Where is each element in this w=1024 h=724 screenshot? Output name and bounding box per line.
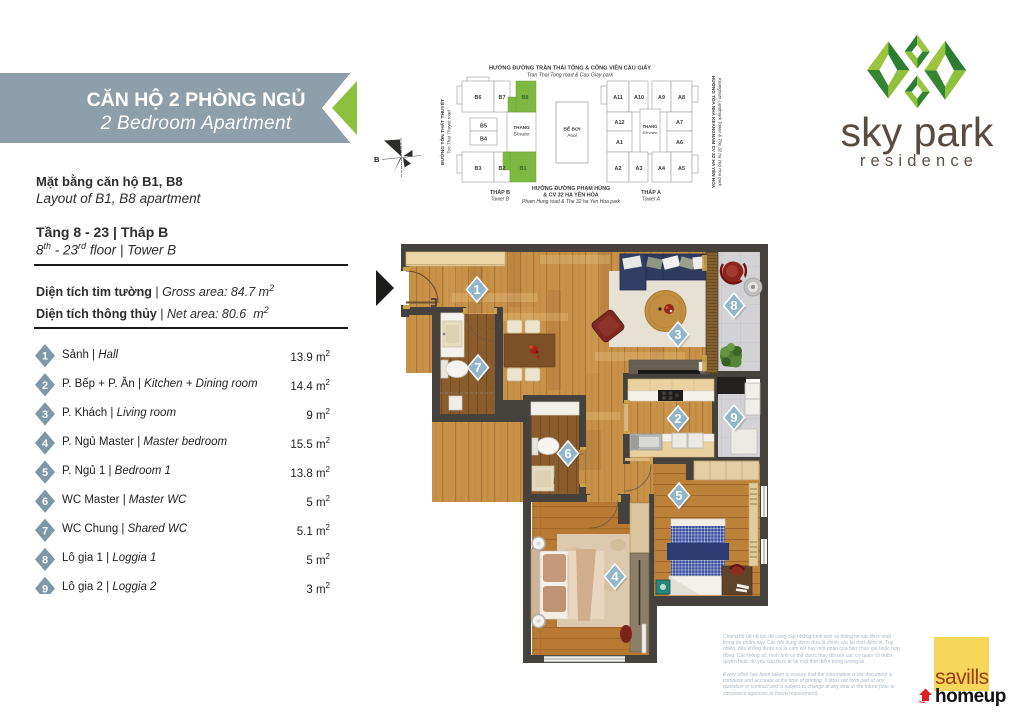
svg-text:A3: A3: [636, 166, 643, 172]
svg-text:Tran Thai Tong road & Cau Giay: Tran Thai Tong road & Cau Giay park: [527, 73, 613, 79]
svg-text:9: 9: [42, 584, 48, 595]
svg-text:1: 1: [473, 282, 480, 297]
svg-text:residence: residence: [860, 152, 978, 170]
svg-text:A7: A7: [676, 120, 683, 126]
svg-text:2: 2: [42, 380, 48, 392]
svg-text:Elevator: Elevator: [513, 132, 530, 137]
svg-text:A8: A8: [678, 95, 685, 101]
svg-text:A5: A5: [678, 166, 685, 172]
svg-text:Tower A: Tower A: [642, 197, 661, 203]
svg-text:sky park: sky park: [841, 109, 994, 155]
svg-text:HƯỚNG ĐƯỜNG TRẦN THÁI TÔNG & C: HƯỚNG ĐƯỜNG TRẦN THÁI TÔNG & CÔNG VIÊN C…: [489, 64, 651, 72]
svg-text:HƯỚNG TÒA NHÀ KEANGNAM CV 32 H: HƯỚNG TÒA NHÀ KEANGNAM CV 32 HA YÊN HÒA: [711, 76, 718, 189]
svg-text:& CV 32 HA YÊN HÒA: & CV 32 HA YÊN HÒA: [543, 191, 599, 199]
svg-text:B: B: [374, 155, 380, 164]
svg-text:ĐƯỜNG TÔN THẤT THUYẾT: ĐƯỜNG TÔN THẤT THUYẾT: [438, 99, 446, 165]
svg-text:A9: A9: [658, 95, 665, 101]
svg-text:6: 6: [564, 446, 571, 461]
svg-text:B6: B6: [475, 95, 482, 101]
svg-text:4: 4: [42, 438, 49, 450]
svg-text:A6: A6: [676, 140, 683, 146]
svg-text:THANG: THANG: [513, 125, 530, 130]
svg-text:1: 1: [42, 351, 48, 363]
svg-text:Keangnam Landmark Tower & The: Keangnam Landmark Tower & The 32 ha Yeo …: [718, 78, 723, 187]
svg-text:B1: B1: [520, 166, 527, 172]
svg-text:B5: B5: [480, 124, 487, 130]
svg-text:6: 6: [42, 496, 48, 508]
svg-text:Tower B: Tower B: [491, 197, 510, 203]
svg-text:B2: B2: [499, 166, 506, 172]
svg-text:9: 9: [730, 410, 737, 425]
svg-text:3: 3: [42, 409, 48, 421]
svg-text:5: 5: [42, 467, 48, 479]
svg-text:A12: A12: [615, 120, 625, 126]
svg-text:4: 4: [611, 569, 619, 584]
svg-text:Pool: Pool: [567, 133, 577, 138]
svg-text:Pham Hung road & The 32 ha Yen: Pham Hung road & The 32 ha Yen Hoa park: [522, 199, 621, 205]
svg-text:B8: B8: [522, 95, 529, 101]
svg-text:A2: A2: [615, 166, 622, 172]
svg-text:8: 8: [42, 554, 48, 566]
svg-text:THÁP A: THÁP A: [641, 189, 661, 196]
svg-text:Ton That Thuyet road: Ton That Thuyet road: [447, 110, 452, 154]
svg-text:7: 7: [42, 525, 48, 537]
svg-text:A1: A1: [616, 140, 623, 146]
svg-text:7: 7: [474, 360, 481, 375]
svg-text:B3: B3: [475, 166, 482, 172]
svg-text:A10: A10: [634, 95, 644, 101]
svg-text:2: 2: [674, 411, 681, 426]
svg-text:A11: A11: [613, 95, 623, 101]
svg-text:THÁP B: THÁP B: [490, 189, 510, 196]
svg-text:A4: A4: [658, 166, 665, 172]
svg-text:Elevator: Elevator: [643, 130, 658, 135]
svg-text:THANG: THANG: [643, 124, 658, 129]
svg-text:3: 3: [674, 327, 681, 342]
svg-text:B4: B4: [480, 137, 487, 143]
svg-text:8: 8: [730, 298, 737, 313]
svg-text:BỂ BƠI: BỂ BƠI: [564, 126, 582, 133]
svg-text:HƯỚNG ĐƯỜNG PHẠM HÙNG: HƯỚNG ĐƯỜNG PHẠM HÙNG: [532, 184, 610, 192]
svg-text:5: 5: [675, 488, 682, 503]
svg-text:B7: B7: [499, 95, 506, 101]
